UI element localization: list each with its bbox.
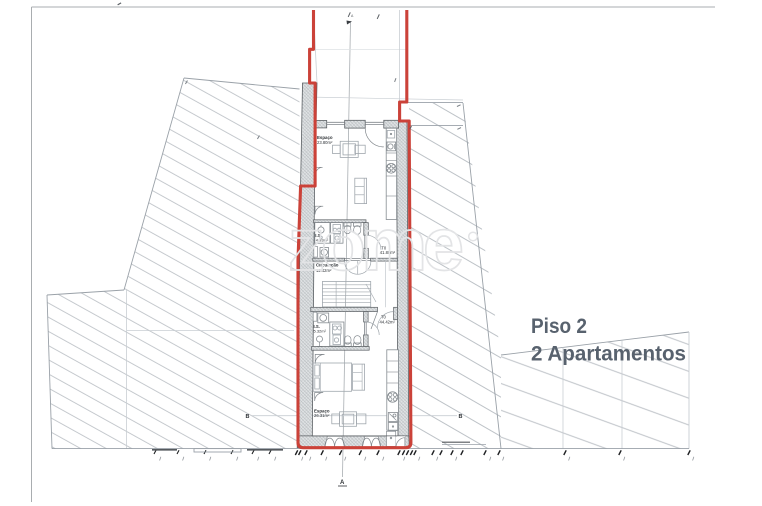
svg-text:2 Apartamentos: 2 Apartamentos [531, 341, 686, 365]
svg-text:B: B [459, 414, 463, 420]
svg-text:23.80m²: 23.80m² [317, 140, 333, 145]
svg-text:Piso 2: Piso 2 [531, 314, 587, 338]
svg-text:B: B [246, 414, 250, 420]
svg-text:zome: zome [288, 203, 468, 286]
svg-text:44.42m²: 44.42m² [380, 320, 396, 325]
svg-text:26.31m²: 26.31m² [314, 413, 330, 418]
svg-text:5.32m²: 5.32m² [314, 329, 327, 334]
svg-text:A: A [340, 480, 345, 486]
